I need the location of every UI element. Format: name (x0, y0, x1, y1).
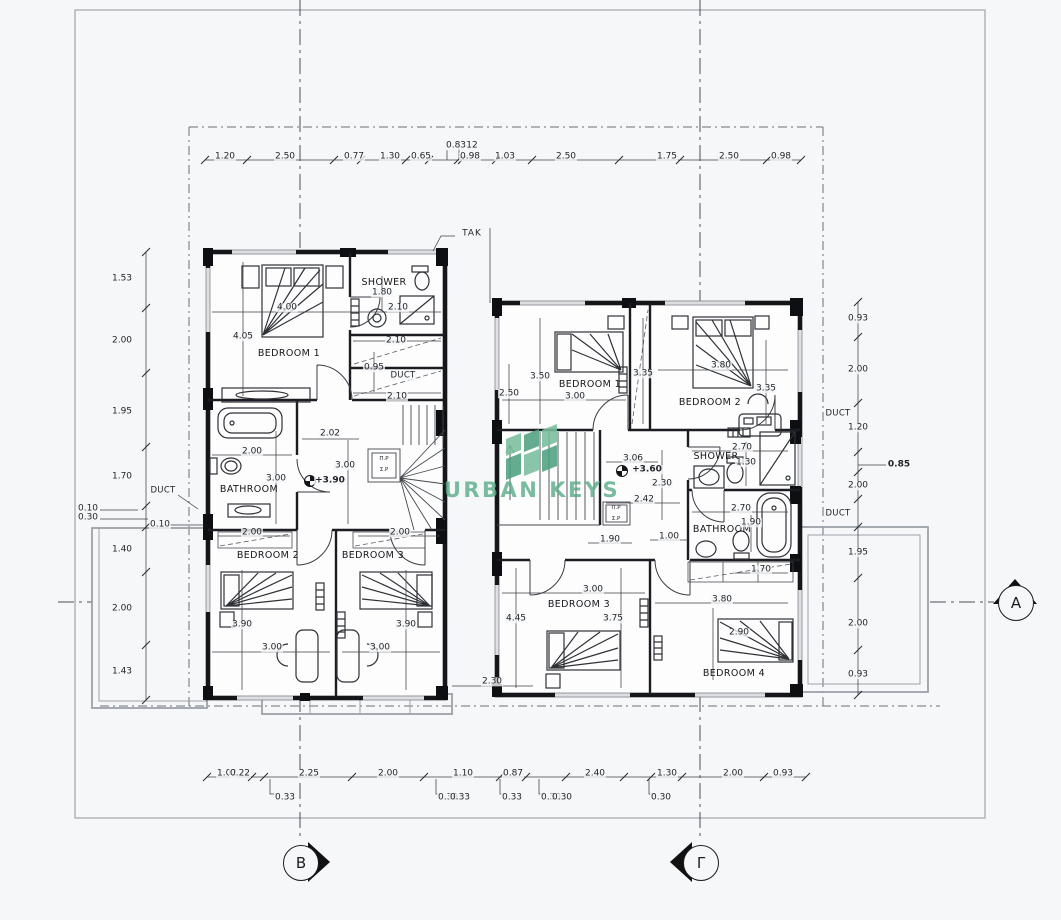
floor-plan-canvas: URBAN KEYS BEDROOM 1SHOWERBATHROOMBEDROO… (0, 0, 1061, 920)
dimension-label: 0.65 (410, 152, 432, 161)
dimension-label: 0.30 (650, 793, 672, 802)
dimension-label: 2.10 (386, 392, 408, 401)
dimension-label: 0.33 (501, 793, 523, 802)
dimension-label: 2.00 (241, 528, 263, 537)
dimension-label: 3.00 (564, 392, 586, 401)
dimension-label: 0.98 (770, 152, 792, 161)
dimension-label: 2.10 (387, 303, 409, 312)
dimension-label: 2.00 (389, 528, 411, 537)
dimension-label: 0.33 (274, 793, 296, 802)
section-marker-b-label: B (296, 854, 306, 872)
dimension-label: 4.05 (232, 332, 254, 341)
dimension-label: 2.50 (555, 152, 577, 161)
section-marker-a-label: A (1011, 594, 1021, 612)
dimension-label: 3.00 (334, 461, 356, 470)
dimension-label: 2.42 (633, 495, 655, 504)
dimension-label: 2.50 (498, 389, 520, 398)
dimension-label: 1.70 (111, 472, 133, 481)
dimension-label: 2.02 (319, 429, 341, 438)
dimension-label: 0.10 (149, 520, 171, 529)
room-label: BEDROOM 2 (236, 551, 300, 561)
dimension-label: 0.93 (847, 314, 869, 323)
dimension-label: 2.30 (481, 677, 503, 686)
dimension-label: 0.22 (229, 769, 251, 778)
dimension-label: 3.90 (231, 620, 253, 629)
dimension-label: 1.20 (214, 152, 236, 161)
dimension-label: 4.45 (505, 614, 527, 623)
dimension-label: 4.00 (276, 303, 298, 312)
dimension-label: 1.03 (494, 152, 516, 161)
level-label: +3.60 (631, 465, 663, 474)
dimension-label: 1.20 (847, 423, 869, 432)
dimension-label: 1.80 (371, 288, 393, 297)
dimension-label: 1.40 (111, 545, 133, 554)
dimension-label: 2.50 (274, 152, 296, 161)
dimension-label: 0.77 (343, 152, 365, 161)
level-marker-right (617, 466, 628, 477)
duct-label: DUCT (824, 410, 851, 419)
dimension-label: 2.00 (111, 336, 133, 345)
dimension-label: 1.10 (452, 769, 474, 778)
dimension-label: 3.00 (261, 643, 283, 652)
equipment-label: Σ.Ρ (379, 468, 390, 474)
dimension-label: 1.70 (750, 565, 772, 574)
dimension-label: 2.70 (730, 504, 752, 513)
dimension-label: 1.53 (111, 274, 133, 283)
dimension-label: 0.85 (887, 460, 911, 469)
room-label: BEDROOM 3 (547, 600, 611, 610)
dimension-label: 12 (465, 141, 478, 150)
dimension-label: 0.33 (449, 793, 471, 802)
dimension-label: 3.00 (369, 643, 391, 652)
dimension-label: 3.06 (622, 454, 644, 463)
dimension-label: 3.80 (710, 361, 732, 370)
room-label: BATHROOM (219, 485, 279, 495)
dimension-label: 1.75 (656, 152, 678, 161)
dimension-label: 0.93 (772, 769, 794, 778)
section-marker-gamma: Γ (683, 845, 719, 881)
dimension-label: 0.30 (551, 793, 573, 802)
dimension-label: 2.90 (728, 628, 750, 637)
dimension-label: 3.80 (711, 595, 733, 604)
dimension-label: 1.90 (740, 518, 762, 527)
dimension-label: 1.30 (735, 458, 757, 467)
dimension-label: 0.87 (502, 769, 524, 778)
dimension-label: 2.70 (731, 443, 753, 452)
balcony-left (92, 528, 207, 708)
dimension-label: 3.35 (755, 384, 777, 393)
dimension-label: 2.00 (847, 619, 869, 628)
equipment-label: Π.Ρ (378, 457, 389, 463)
level-label: +3.90 (314, 476, 346, 485)
dimension-label: 0.83 (445, 141, 467, 150)
duct-label: DUCT (824, 510, 851, 519)
dimension-label: 2.00 (241, 447, 263, 456)
room-label: BEDROOM 1 (558, 380, 622, 390)
tak-label: TAK (461, 229, 483, 238)
equipment-label: Σ.Ρ (611, 517, 622, 523)
dimension-label: 0.95 (363, 363, 385, 372)
room-label: BEDROOM 3 (341, 551, 405, 561)
dimension-label: 1.30 (656, 769, 678, 778)
section-marker-gamma-label: Γ (697, 854, 705, 872)
dimension-label: 1.43 (111, 667, 133, 676)
dimension-label: 3.00 (265, 474, 287, 483)
dimension-label: 0.98 (459, 152, 481, 161)
dimension-label: 1.30 (379, 152, 401, 161)
duct-label: DUCT (149, 487, 176, 496)
section-marker-b: B (283, 845, 319, 881)
dimension-label: 0.30 (77, 513, 99, 522)
duct-label: DUCT (389, 372, 416, 381)
dimension-label: 1.95 (111, 407, 133, 416)
dimension-label: 1.90 (599, 535, 621, 544)
dimension-label: 2.50 (718, 152, 740, 161)
dimension-label: 3.00 (582, 585, 604, 594)
room-label: BEDROOM 1 (257, 349, 321, 359)
dimension-label: 3.50 (529, 372, 551, 381)
dimension-label: 2.00 (847, 481, 869, 490)
dimension-label: 2.30 (651, 479, 673, 488)
room-label: BEDROOM 2 (678, 398, 742, 408)
dimension-label: 2.00 (722, 769, 744, 778)
dimension-label: 2.40 (584, 769, 606, 778)
dimension-label: 2.00 (847, 365, 869, 374)
dimension-label: 2.10 (385, 336, 407, 345)
equipment-label: Π.Ρ (610, 506, 621, 512)
section-marker-a: A (998, 585, 1034, 621)
dimension-label: 3.90 (395, 620, 417, 629)
dimension-label: 1.95 (847, 548, 869, 557)
room-label: BEDROOM 4 (702, 669, 766, 679)
room-label: SHOWER (692, 452, 739, 462)
dimension-label: 1.00 (658, 532, 680, 541)
dimension-label: 3.75 (602, 614, 624, 623)
dimension-label: 3.35 (632, 369, 654, 378)
urban-keys-watermark: URBAN KEYS (442, 478, 622, 502)
dimension-label: 2.00 (377, 769, 399, 778)
dimension-label: 2.25 (298, 769, 320, 778)
dimension-label: 2.00 (111, 604, 133, 613)
dimension-label: 0.93 (847, 670, 869, 679)
